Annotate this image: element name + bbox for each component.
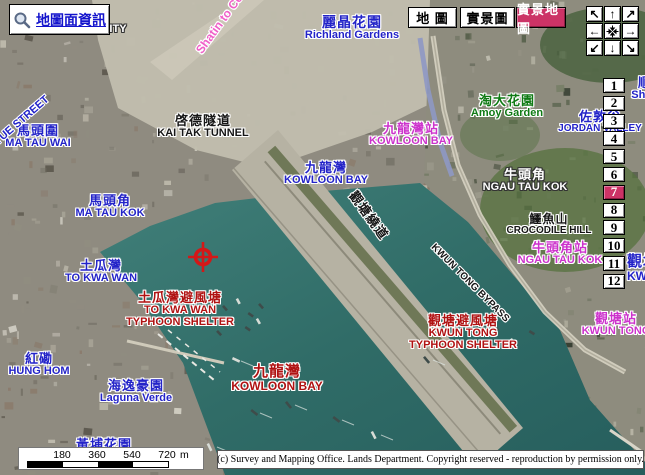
map-label-crocodile-hill: 鱷魚山CROCODILE HILL bbox=[507, 213, 592, 237]
zoom-level-1-button[interactable]: 1 bbox=[603, 78, 625, 93]
map-label-kai-tak-tunnel: 啓德隧道KAI TAK TUNNEL bbox=[157, 114, 248, 140]
zoom-level-11-button[interactable]: 11 bbox=[603, 256, 625, 271]
map-label-amoy-garden: 淘大花園Amoy Garden bbox=[471, 94, 543, 120]
map-label-kowloon-bay-sea: 九龍灣KOWLOON BAY bbox=[231, 364, 323, 393]
center-arrows-icon bbox=[606, 25, 619, 38]
satellite-map[interactable] bbox=[0, 0, 645, 475]
pan-north-button[interactable]: ↑ bbox=[604, 6, 621, 22]
pan-southeast-button[interactable]: ↘ bbox=[622, 40, 639, 56]
pan-west-button[interactable]: ← bbox=[586, 23, 603, 39]
pan-south-button[interactable]: ↓ bbox=[604, 40, 621, 56]
map-info-label: 地圖面資訊 bbox=[36, 10, 106, 30]
scale-bar-segments bbox=[27, 461, 169, 468]
map-crosshair-icon bbox=[185, 239, 221, 275]
magnifier-icon bbox=[13, 11, 31, 29]
zoom-level-7-button[interactable]: 7 bbox=[603, 185, 625, 200]
scale-tick: 180 bbox=[53, 449, 71, 461]
zoom-level-5-button[interactable]: 5 bbox=[603, 149, 625, 164]
map-label-to-kwa-wan: 土瓜灣TO KWA WAN bbox=[65, 259, 137, 285]
zoom-level-8-button[interactable]: 8 bbox=[603, 203, 625, 218]
map-label-ma-tau-kok: 馬頭角MA TAU KOK bbox=[75, 194, 144, 220]
zoom-level-6-button[interactable]: 6 bbox=[603, 167, 625, 182]
map-label-ngau-tau-kok: 牛頭角NGAU TAU KOK bbox=[483, 168, 568, 194]
view-tab-map[interactable]: 地 圖 bbox=[408, 7, 457, 28]
scale-tick: 720 bbox=[158, 449, 176, 461]
map-viewer: CITYShatin to Ce麗晶花園Richland Gardens啓德隧道… bbox=[0, 0, 645, 475]
pan-northeast-button[interactable]: ↗ bbox=[622, 6, 639, 22]
map-label-kwun-tong-district: 觀塘KWUN TONG bbox=[627, 254, 645, 283]
map-label-kowloon-bay-station: 九龍灣站KOWLOON BAY bbox=[369, 122, 453, 148]
map-info-button[interactable]: 地圖面資訊 bbox=[9, 4, 110, 35]
map-label-hung-hom: 紅磡HUNG HOM bbox=[8, 352, 69, 378]
map-label-kt-station: 觀塘站KWUN TONG bbox=[582, 312, 645, 338]
center-map-button[interactable] bbox=[604, 23, 621, 39]
map-label-jordan-valley: 佐敦谷JORDAN VALLEY bbox=[558, 110, 642, 135]
zoom-level-12-button[interactable]: 12 bbox=[603, 274, 625, 289]
copyright-notice: (c) Survey and Mapping Office. Lands Dep… bbox=[217, 450, 644, 469]
view-tab-aerial[interactable]: 實景圖 bbox=[460, 7, 515, 28]
map-label-ntk-station: 牛頭角站NGAU TAU KOK bbox=[518, 241, 603, 267]
pan-southwest-button[interactable]: ↙ bbox=[586, 40, 603, 56]
scale-bar: m 180360540720 bbox=[18, 447, 204, 470]
zoom-level-10-button[interactable]: 10 bbox=[603, 238, 625, 253]
view-tab-aerial-map[interactable]: 實景地圖 bbox=[516, 7, 566, 28]
zoom-level-4-button[interactable]: 4 bbox=[603, 131, 625, 146]
zoom-level-9-button[interactable]: 9 bbox=[603, 220, 625, 235]
map-label-shun-lee: 順Shun bbox=[631, 76, 645, 102]
pan-east-button[interactable]: → bbox=[622, 23, 639, 39]
scale-unit: m bbox=[180, 449, 189, 461]
pan-northwest-button[interactable]: ↖ bbox=[586, 6, 603, 22]
zoom-level-2-button[interactable]: 2 bbox=[603, 96, 625, 111]
map-label-laguna-verde: 海逸豪園Laguna Verde bbox=[100, 379, 172, 405]
zoom-level-3-button[interactable]: 3 bbox=[603, 114, 625, 129]
scale-tick: 360 bbox=[88, 449, 106, 461]
map-label-kowloon-bay-district: 九龍灣KOWLOON BAY bbox=[284, 161, 368, 187]
map-label-tkw-typhoon-shelter: 土瓜灣避風塘TO KWA WANTYPHOON SHELTER bbox=[126, 291, 234, 329]
map-label-richland-gardens: 麗晶花園Richland Gardens bbox=[305, 15, 399, 42]
scale-tick: 540 bbox=[123, 449, 141, 461]
